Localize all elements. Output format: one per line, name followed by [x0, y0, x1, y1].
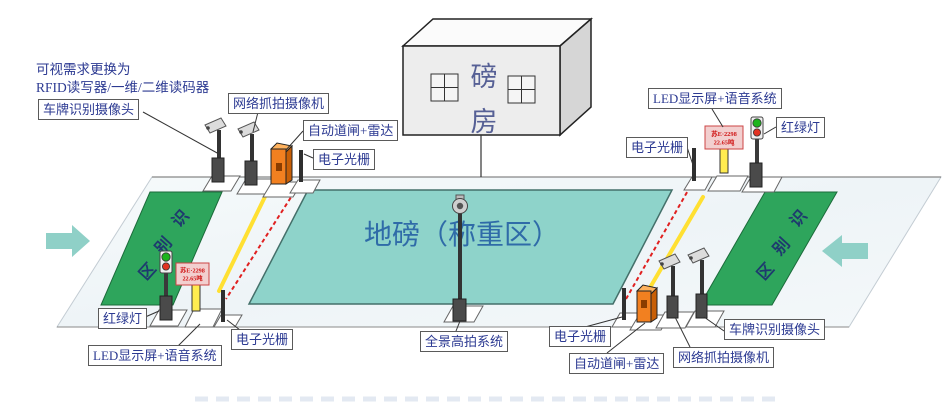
label-grating-bottom-left: 电子光栅: [231, 329, 293, 350]
label-net-camera-top: 网络抓拍摄像机: [228, 93, 329, 114]
green-light-icon: [753, 119, 761, 127]
led-display-top-right: 苏E·2298 22.65吨: [705, 126, 743, 173]
connector-line: [304, 154, 313, 158]
traffic-light-top-right: [750, 117, 763, 187]
rfid-note-line1: 可视需求更换为: [36, 61, 209, 79]
pole-base-block: [212, 158, 224, 182]
led-text-weight: 22.65吨: [714, 138, 735, 147]
light-curtain-pole: [221, 290, 225, 322]
barrier-gate-top: [271, 143, 292, 184]
device-group-top-right: 苏E·2298 22.65吨: [684, 117, 782, 192]
led-pole: [192, 285, 200, 311]
label-led-voice-top-right: LED显示屏+语音系统: [648, 88, 782, 109]
camera-pole: [458, 212, 462, 302]
connector-line: [286, 131, 303, 150]
rfid-note: 可视需求更换为 RFID读写器/一维/二维读码器: [36, 61, 209, 97]
camera-lens-icon: [660, 262, 664, 266]
light-curtain-pole: [299, 150, 303, 182]
label-grating-top-left: 电子光栅: [313, 149, 375, 170]
camera-head-icon: [238, 122, 259, 137]
label-grating-bottom-right: 电子光栅: [549, 326, 611, 347]
building-name-char: 房: [471, 107, 498, 137]
camera-pole: [671, 266, 675, 298]
camera-head-icon: [205, 118, 226, 133]
barrier-side-face: [286, 146, 292, 184]
pole-base-block: [245, 161, 257, 185]
plate-recognition-camera: [205, 118, 226, 182]
camera-lens-icon: [206, 126, 210, 130]
rfid-note-line2: RFID读写器/一维/二维读码器: [36, 79, 209, 97]
pole-base-block: [667, 296, 678, 318]
red-light-icon: [162, 263, 169, 270]
pole-base-block: [453, 299, 466, 321]
camera-lens-icon: [689, 256, 693, 260]
label-panorama-system: 全景高拍系统: [420, 331, 508, 352]
label-led-voice-bottom-left: LED显示屏+语音系统: [88, 345, 222, 366]
barrier-panel: [641, 300, 647, 308]
led-pole: [720, 149, 728, 173]
network-capture-camera: [238, 122, 259, 185]
led-text-plate: 苏E·2298: [711, 129, 737, 138]
pole-base-block: [160, 296, 172, 320]
barrier-panel: [276, 163, 282, 171]
label-grating-top-right: 电子光栅: [626, 137, 688, 158]
camera-lens-icon: [239, 130, 243, 134]
pole-base-block: [696, 294, 707, 318]
building-roof: [403, 19, 591, 46]
barrier-side-face: [651, 288, 657, 322]
label-barrier-radar-bottom: 自动道闸+雷达: [569, 353, 664, 374]
label-traffic-light-bottom-left: 红绿灯: [98, 308, 147, 329]
weighbridge-system-diagram: 识 别 区 识 别 区 地磅（称重区） 磅 房: [0, 0, 945, 402]
entry-arrow-left-icon: [46, 225, 90, 257]
barrier-gate-bottom: [637, 285, 657, 322]
camera-pole: [217, 130, 221, 162]
pole-base-block: [750, 163, 762, 187]
light-curtain-pole: [622, 288, 626, 320]
building-name-char: 磅: [471, 62, 498, 92]
connector-line: [764, 127, 776, 134]
camera-lens-icon: [457, 203, 463, 209]
connector-line: [143, 112, 219, 154]
window-icon: [431, 74, 458, 101]
led-text-plate: 苏E·2298: [180, 267, 205, 275]
label-barrier-radar-top: 自动道闸+雷达: [303, 120, 398, 141]
window-icon: [508, 76, 535, 103]
label-net-camera-bottom: 网络抓拍摄像机: [673, 347, 774, 368]
led-text-weight: 22.65吨: [182, 275, 203, 283]
label-traffic-light-top-right: 红绿灯: [776, 117, 825, 138]
label-plate-camera-bottom: 车牌识别摄像头: [724, 319, 825, 340]
camera-pole: [700, 260, 704, 296]
weigh-house-building: 磅 房: [403, 19, 591, 177]
green-light-icon: [162, 253, 170, 261]
label-plate-camera-top: 车牌识别摄像头: [38, 99, 139, 120]
connector-line: [712, 109, 723, 127]
red-light-icon: [753, 129, 760, 136]
